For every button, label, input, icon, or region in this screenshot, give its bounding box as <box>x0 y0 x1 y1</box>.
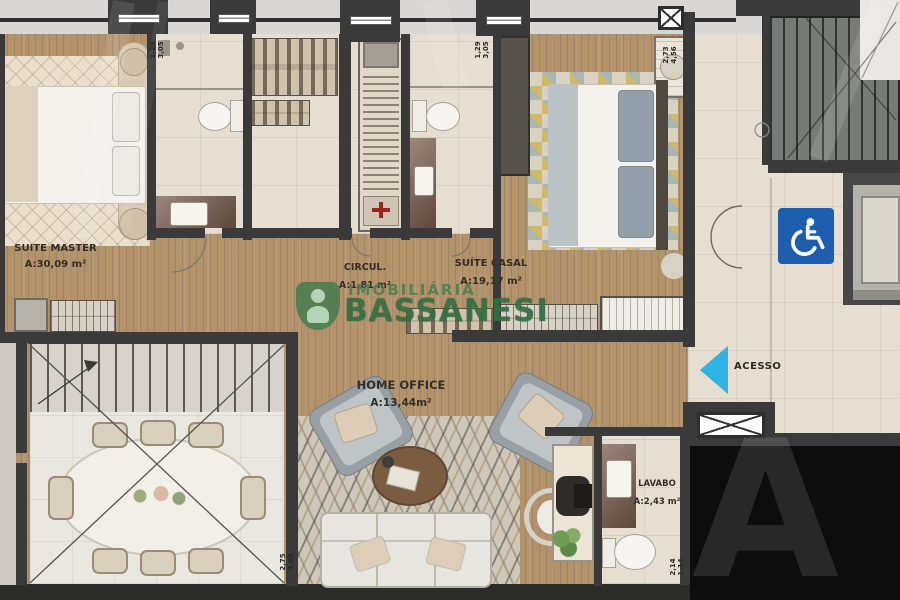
wall <box>339 34 351 240</box>
table-centerpiece <box>128 484 188 508</box>
room-area: A:13,44m² <box>341 395 461 412</box>
dining-chair <box>188 422 224 448</box>
dimension-bath2: 1,29 3,05 <box>474 33 490 67</box>
pillow <box>112 92 140 142</box>
wheelchair-accessible-icon <box>778 208 834 264</box>
wall <box>768 433 900 446</box>
dining-chair <box>188 548 224 574</box>
wall <box>594 436 602 586</box>
room-name: SUITE MASTER <box>8 241 103 257</box>
sink <box>170 202 208 226</box>
stair-bottom-wall <box>768 160 900 173</box>
shower-fixture <box>176 42 184 50</box>
dresser <box>600 296 686 332</box>
wall <box>683 12 695 347</box>
dining-chair <box>92 548 128 574</box>
left-exterior-strip <box>0 343 16 585</box>
access-arrow-icon <box>700 346 728 394</box>
corridor-divider-line <box>770 178 772 433</box>
master-bed-blanket <box>4 86 38 202</box>
logo-person-body <box>307 306 329 323</box>
dimension-home-office: 2,75 4,89 <box>279 545 295 579</box>
wall <box>370 228 452 238</box>
wall <box>16 343 27 453</box>
stair-cut-corner <box>860 0 900 80</box>
wall <box>222 228 352 238</box>
shoe-rack <box>250 38 338 96</box>
shower-divider <box>410 86 494 88</box>
sofa <box>320 512 492 588</box>
closet-safe <box>363 42 399 68</box>
room-label-suite-master: SUITE MASTER A:30,09 m² <box>8 241 103 272</box>
pillow <box>112 146 140 196</box>
elevator-door <box>853 290 900 300</box>
logo-person-head <box>311 289 325 303</box>
laptop <box>574 484 592 508</box>
floor-plan: SUITE MASTER A:30,09 m² CIRCUL. A:1,81 m… <box>0 0 900 600</box>
void-black-area <box>688 445 900 600</box>
toilet <box>614 534 656 570</box>
window-icon <box>486 16 522 25</box>
wall <box>0 34 5 334</box>
wall <box>470 228 501 238</box>
watermark-brand-main: BASSANESI <box>344 293 549 329</box>
cabinet-shelves <box>50 300 116 332</box>
elevator-cab <box>861 196 900 284</box>
cabinet-box <box>14 298 48 332</box>
shaft-x-icon <box>697 412 765 438</box>
room-name: SUÍTE CASAL <box>446 255 536 273</box>
window-icon <box>118 14 160 23</box>
wall <box>147 228 205 238</box>
room-name: CIRCUL. <box>330 259 400 277</box>
dining-chair <box>140 420 176 446</box>
room-area: A:30,09 m² <box>8 257 103 273</box>
room-area: A:2,43 m² <box>627 494 687 512</box>
shoe-rack <box>250 100 310 126</box>
casal-headboard <box>656 80 668 250</box>
casal-wardrobe <box>496 36 530 176</box>
room-label-lavabo: LAVABO A:2,43 m² <box>627 476 687 512</box>
sink <box>414 166 434 196</box>
pillow <box>618 90 654 162</box>
dining-chair <box>240 476 266 520</box>
wall <box>401 34 410 240</box>
nightstand <box>120 48 148 76</box>
shaft-x-icon <box>658 6 684 30</box>
dimension-suite-casal: 2,73 4,56 <box>662 38 678 72</box>
dining-chair <box>48 476 74 520</box>
casal-bed-throw <box>548 84 578 246</box>
lower-staircase <box>30 343 284 412</box>
plant <box>552 526 582 558</box>
toilet <box>198 102 232 131</box>
window-icon <box>350 16 392 25</box>
toilet <box>426 102 460 131</box>
coffee-table-cup <box>382 456 394 468</box>
wall <box>545 427 690 436</box>
wall <box>16 463 27 585</box>
decor-red-item <box>372 202 390 218</box>
shower-divider <box>154 88 248 90</box>
room-name: LAVABO <box>627 476 687 494</box>
window-icon <box>218 14 250 23</box>
room-name: HOME OFFICE <box>341 376 461 395</box>
dimension-master-bath: 1,29 3,05 <box>149 33 165 67</box>
dining-chair <box>92 422 128 448</box>
access-label: ACESSO <box>734 361 781 372</box>
toilet-tank <box>412 100 427 132</box>
pillow <box>618 166 654 238</box>
stair-side-wall <box>762 15 770 165</box>
wall <box>243 34 252 240</box>
room-label-home-office: HOME OFFICE A:13,44m² <box>341 376 461 412</box>
dining-chair <box>140 550 176 576</box>
wall <box>28 336 286 344</box>
hanging-clothes <box>363 74 399 190</box>
wall <box>452 330 688 342</box>
dimension-lavabo: 2,14 1,14 <box>669 550 685 584</box>
